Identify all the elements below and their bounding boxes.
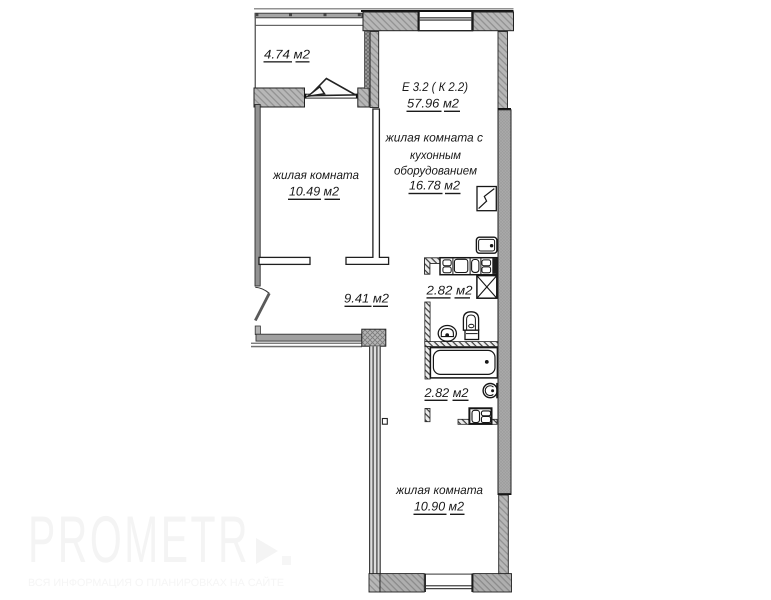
- svg-text:жилая комната с: жилая комната с: [385, 131, 483, 145]
- svg-text:9.41 м2: 9.41 м2: [344, 292, 389, 306]
- svg-text:16.78 м2: 16.78 м2: [409, 179, 460, 193]
- svg-text:Е 3.2 ( К 2.2): Е 3.2 ( К 2.2): [402, 80, 468, 94]
- svg-text:2.82 м2: 2.82 м2: [423, 386, 468, 400]
- svg-text:10.90 м2: 10.90 м2: [414, 500, 464, 514]
- svg-text:оборудованием: оборудованием: [394, 164, 478, 178]
- svg-text:10.49 м2: 10.49 м2: [289, 185, 339, 199]
- svg-text:57.96 м2: 57.96 м2: [407, 97, 459, 111]
- svg-text:ВСЯ ИНФОРМАЦИЯ О ПЛАНИРОВКАХ Н: ВСЯ ИНФОРМАЦИЯ О ПЛАНИРОВКАХ НА САЙТЕ: [28, 576, 284, 589]
- svg-text:кухонным: кухонным: [410, 148, 462, 162]
- svg-text:жилая комната: жилая комната: [272, 168, 359, 182]
- svg-text:PROMETR: PROMETR: [28, 502, 250, 576]
- svg-text:4.74 м2: 4.74 м2: [264, 48, 310, 62]
- svg-text:2.82 м2: 2.82 м2: [425, 284, 472, 298]
- svg-text:жилая комната: жилая комната: [395, 483, 483, 497]
